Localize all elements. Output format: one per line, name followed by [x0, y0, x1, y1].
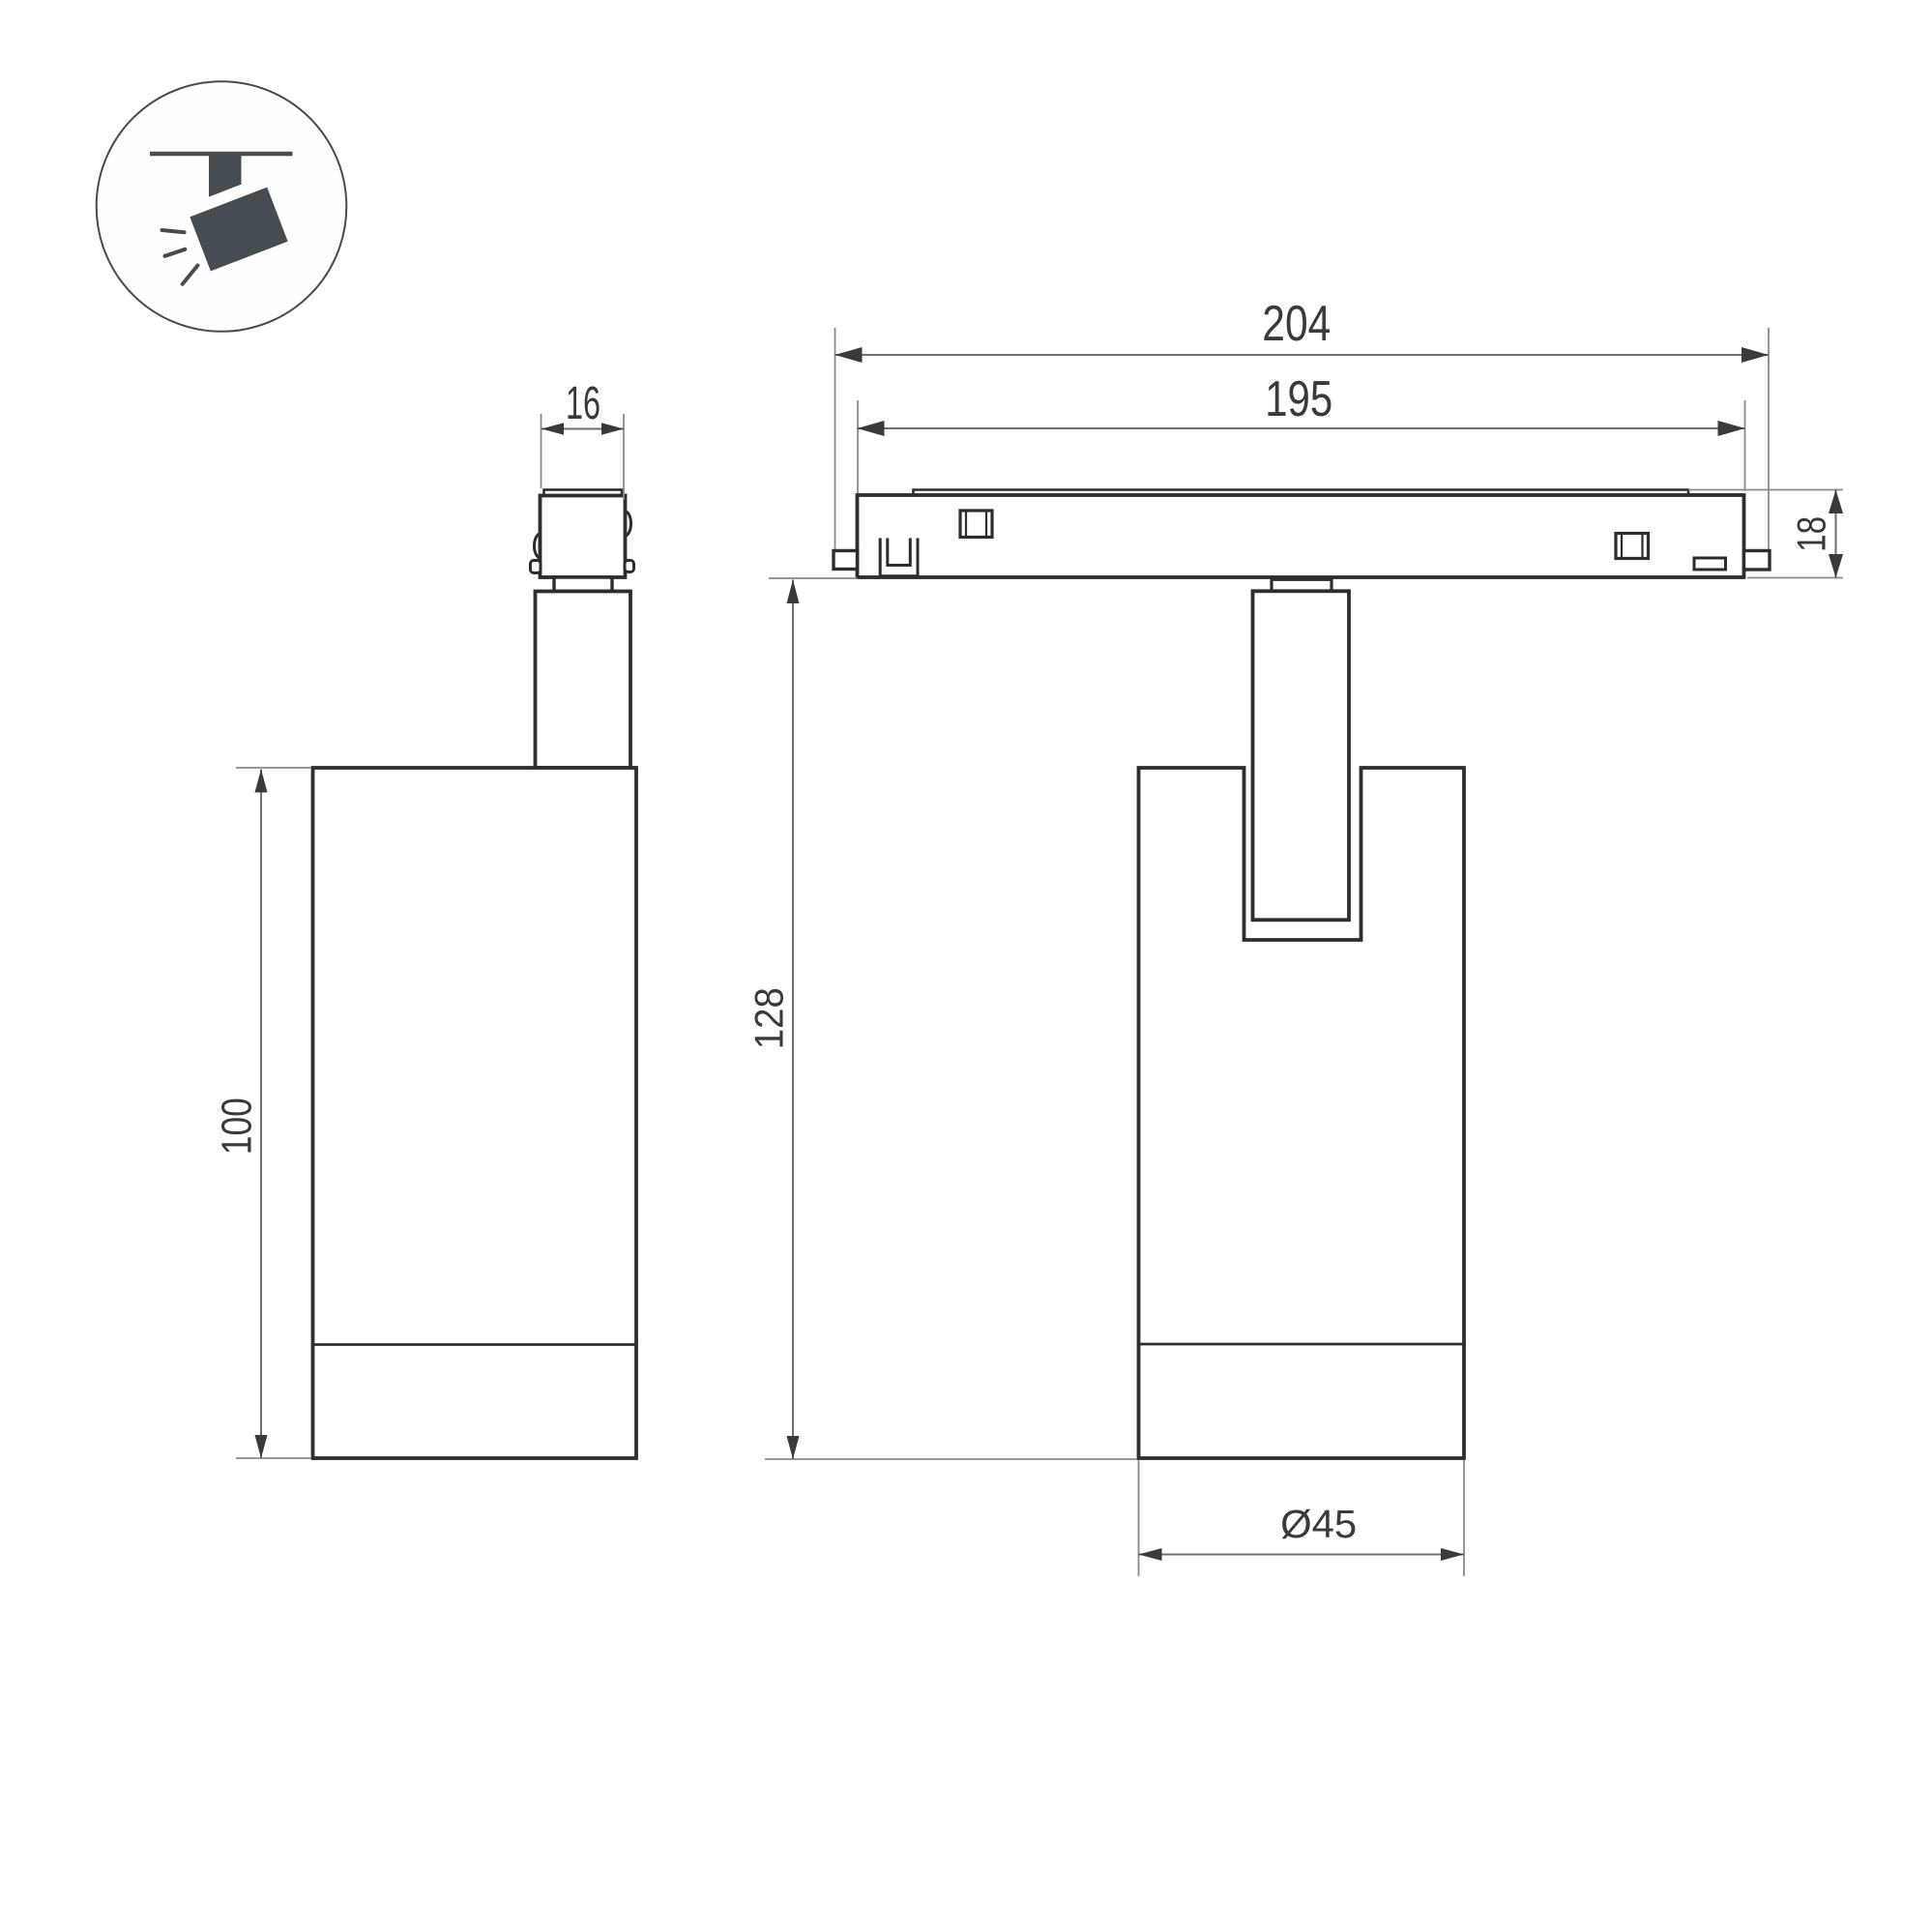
svg-text:16: 16 [566, 378, 600, 429]
svg-text:195: 195 [1265, 371, 1332, 427]
svg-text:Ø45: Ø45 [1280, 1502, 1357, 1546]
svg-text:128: 128 [746, 987, 792, 1049]
svg-text:18: 18 [1789, 516, 1834, 552]
svg-text:100: 100 [214, 1098, 261, 1155]
svg-text:204: 204 [1262, 296, 1331, 352]
